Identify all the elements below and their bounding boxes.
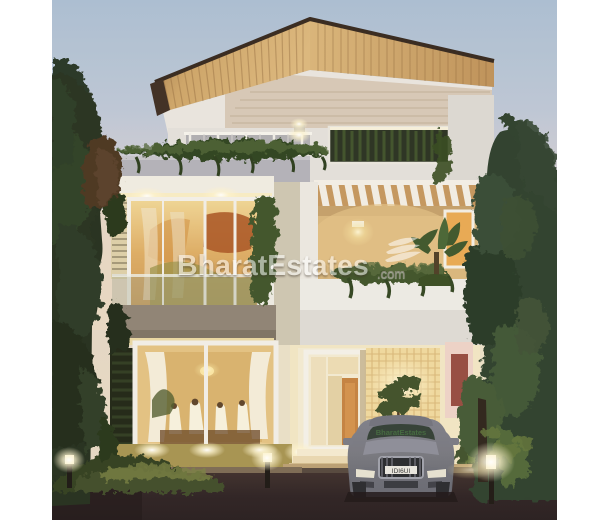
svg-text:BharatEstates: BharatEstates: [177, 250, 369, 282]
svg-text:.com: .com: [377, 266, 405, 281]
